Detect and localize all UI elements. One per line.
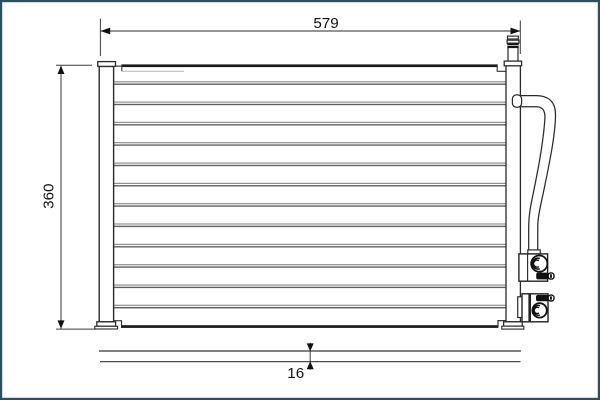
svg-text:579: 579 <box>313 15 338 32</box>
svg-text:16: 16 <box>287 365 304 382</box>
svg-text:360: 360 <box>41 184 58 209</box>
